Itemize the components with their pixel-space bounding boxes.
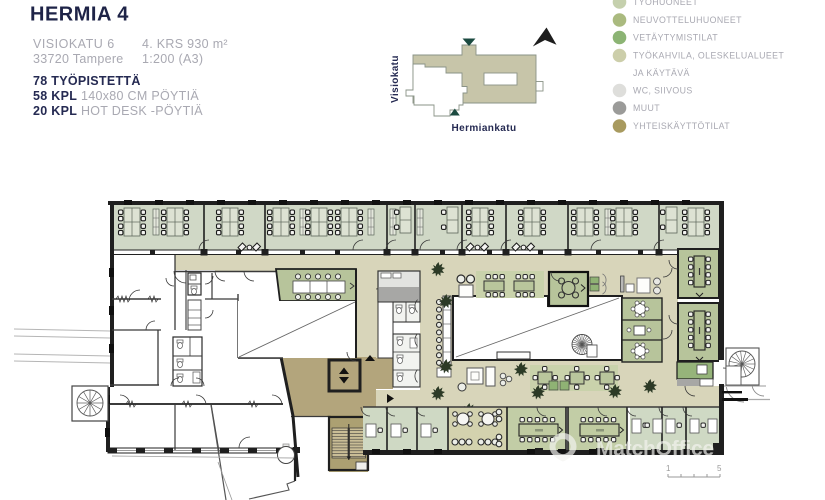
svg-text:HERMIA 4: HERMIA 4	[30, 4, 129, 26]
svg-text:33720 Tampere: 33720 Tampere	[33, 52, 124, 66]
svg-text:Hermiankatu: Hermiankatu	[452, 123, 517, 134]
svg-text:WC, SIIVOUS: WC, SIIVOUS	[633, 86, 693, 96]
svg-text:Visiokatu: Visiokatu	[390, 55, 401, 103]
svg-text:20 KPL HOT DESK -PÖYTIÄ: 20 KPL HOT DESK -PÖYTIÄ	[33, 104, 203, 118]
svg-text:58 KPL 140x80 CM PÖYTIÄ: 58 KPL 140x80 CM PÖYTIÄ	[33, 89, 199, 103]
svg-text:MatchOffice: MatchOffice	[596, 438, 714, 461]
svg-text:NEUVOTTELUHUONEET: NEUVOTTELUHUONEET	[633, 15, 742, 25]
svg-text:JA KÄYTÄVÄ: JA KÄYTÄVÄ	[633, 68, 690, 78]
svg-text:TYÖHUONEET: TYÖHUONEET	[633, 0, 698, 7]
svg-text:MUUT: MUUT	[633, 103, 660, 113]
svg-text:78 TYÖPISTETTÄ: 78 TYÖPISTETTÄ	[33, 73, 141, 88]
svg-text:VISIOKATU 6: VISIOKATU 6	[33, 37, 115, 51]
svg-text:1: 1	[666, 464, 671, 473]
svg-text:TYÖKAHVILA, OLESKELUALUEET: TYÖKAHVILA, OLESKELUALUEET	[633, 51, 784, 61]
svg-text:VETÄYTYMISTILAT: VETÄYTYMISTILAT	[633, 33, 718, 43]
svg-text:YHTEISKÄYTTÖTILAT: YHTEISKÄYTTÖTILAT	[633, 121, 730, 131]
svg-text:1:200 (A3): 1:200 (A3)	[142, 52, 203, 66]
svg-text:4. KRS 930 m²: 4. KRS 930 m²	[142, 37, 228, 51]
svg-text:5: 5	[717, 464, 722, 473]
